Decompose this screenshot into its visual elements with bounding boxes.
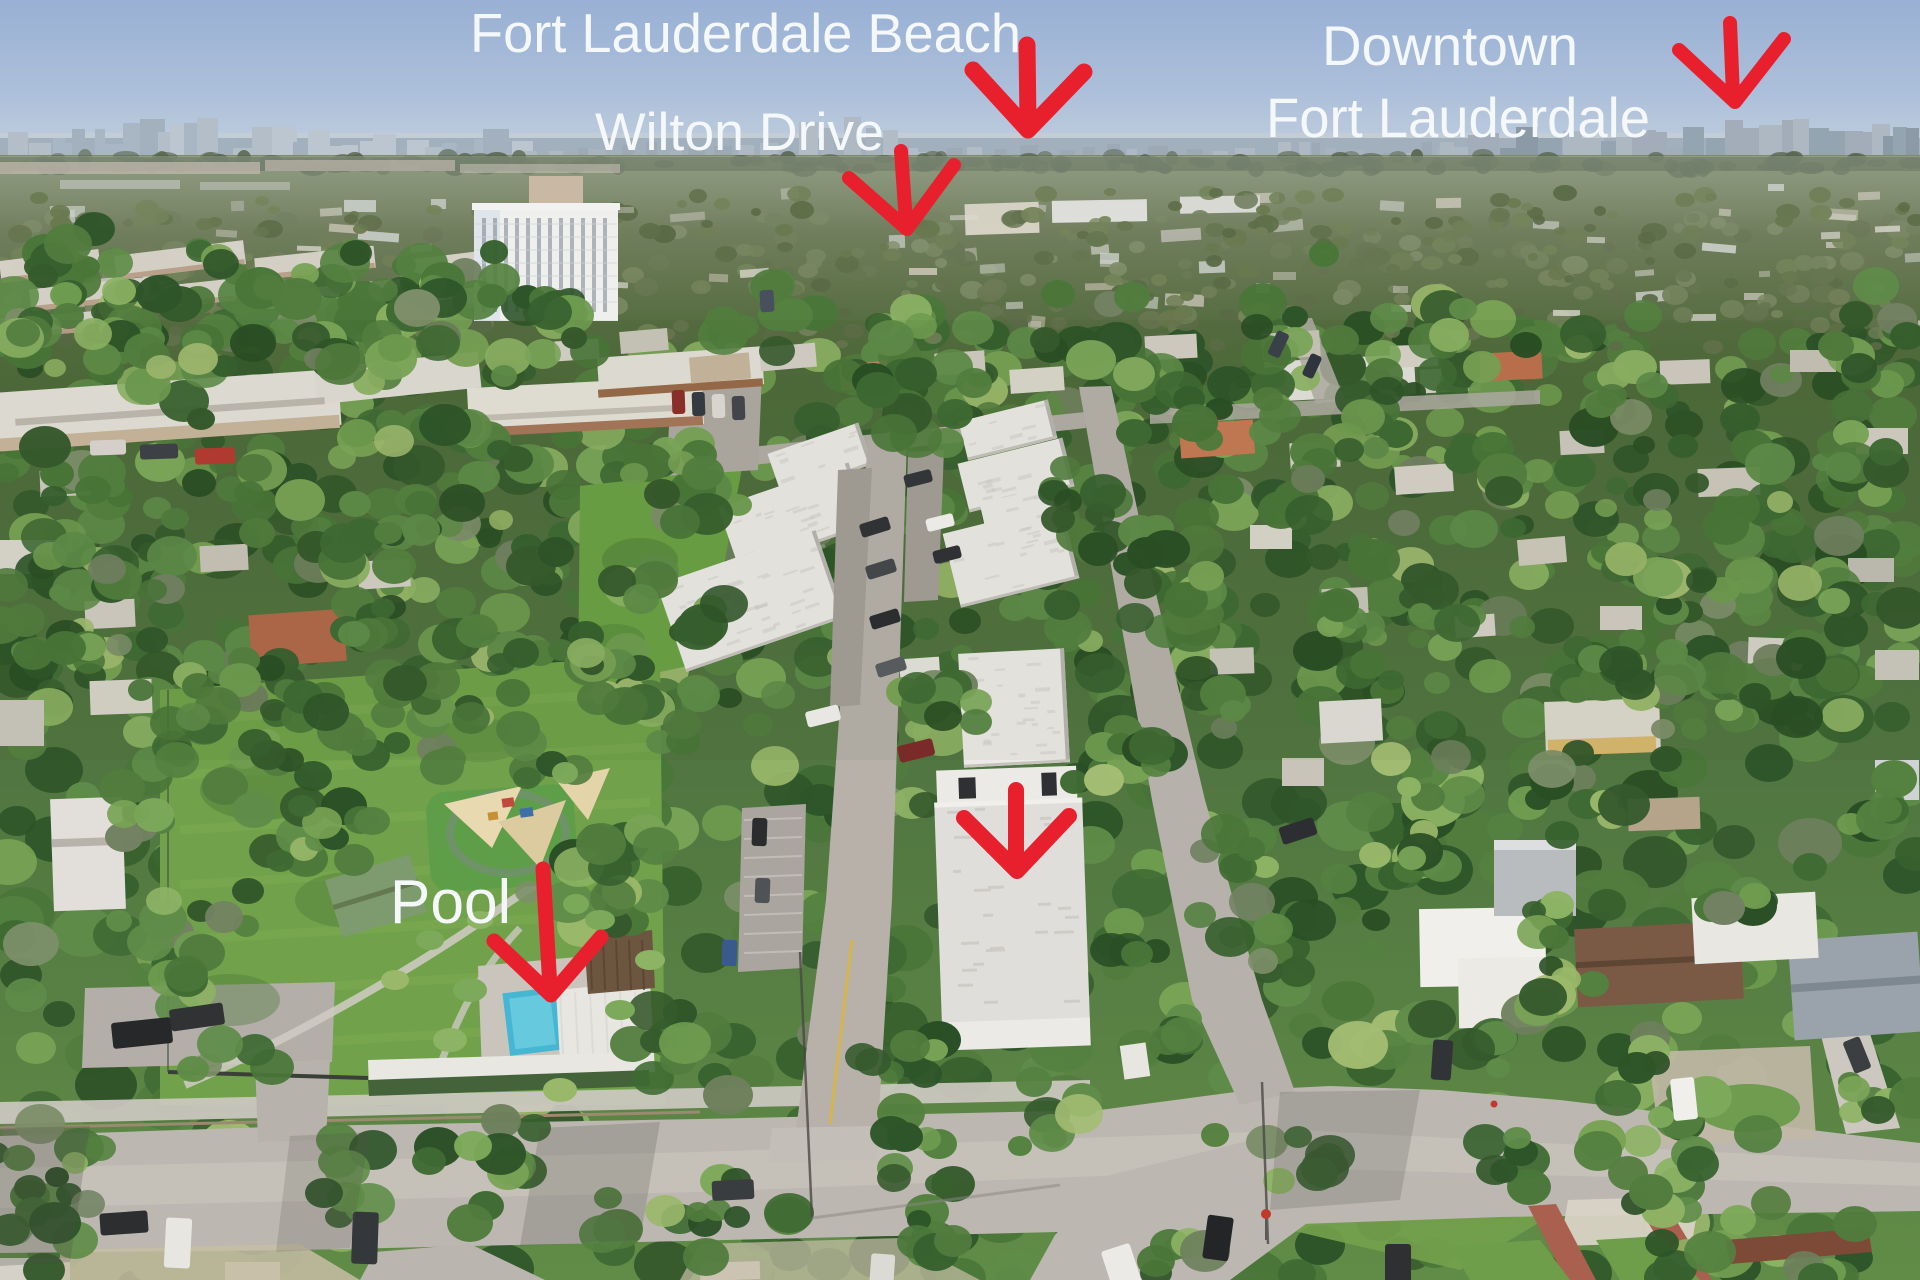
svg-text:Fort Lauderdale: Fort Lauderdale [1266,86,1650,149]
svg-text:Fort Lauderdale Beach: Fort Lauderdale Beach [470,2,1021,64]
svg-text:Wilton Drive: Wilton Drive [595,103,884,162]
svg-text:Pool: Pool [390,868,511,937]
svg-text:Downtown: Downtown [1322,14,1578,77]
